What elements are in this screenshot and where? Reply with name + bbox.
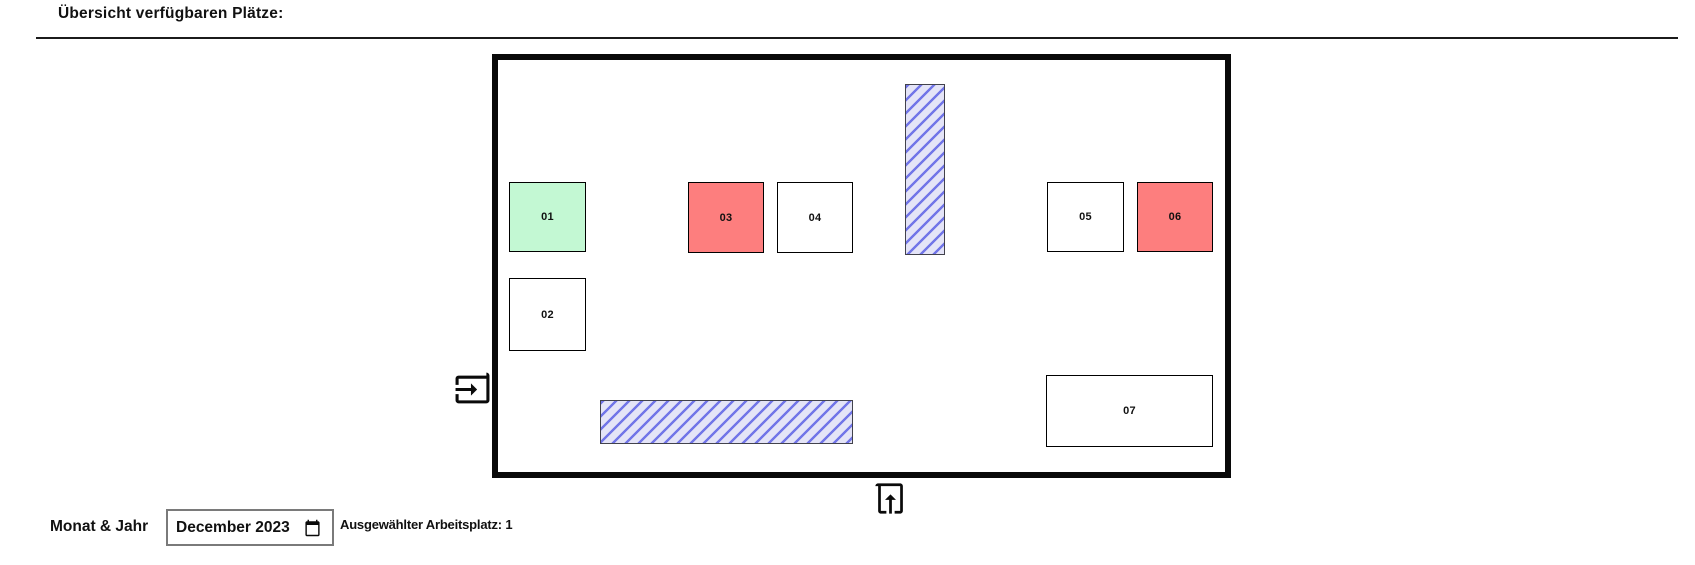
- seat-label: 05: [1079, 211, 1092, 223]
- seat-03[interactable]: 03: [688, 182, 764, 253]
- door-entry-arrow-right-icon: [454, 371, 491, 408]
- calendar-icon[interactable]: [304, 519, 321, 537]
- seat-07[interactable]: 07: [1046, 375, 1213, 447]
- seat-06[interactable]: 06: [1137, 182, 1213, 252]
- month-year-value: December 2023: [176, 519, 290, 537]
- page-title: Übersicht verfügbaren Plätze:: [58, 5, 283, 23]
- seat-04[interactable]: 04: [777, 182, 853, 253]
- seat-label: 07: [1123, 405, 1136, 417]
- seat-label: 04: [809, 212, 822, 224]
- divider: [36, 37, 1678, 39]
- obstacle-hatched-vertical: [905, 84, 945, 255]
- seat-label: 03: [720, 212, 733, 224]
- floorplan-room: 01 02 03 04 05 06 07: [492, 54, 1231, 478]
- seat-label: 06: [1169, 211, 1182, 223]
- door-entry-arrow-up-icon: [874, 482, 907, 515]
- seat-label: 01: [541, 211, 554, 223]
- month-year-input[interactable]: December 2023: [166, 509, 334, 546]
- seat-01[interactable]: 01: [509, 182, 586, 252]
- selected-workspace-text: Ausgewählter Arbeitsplatz: 1: [340, 517, 512, 532]
- month-year-label: Monat & Jahr: [50, 518, 148, 536]
- seat-02[interactable]: 02: [509, 278, 586, 351]
- seat-label: 02: [541, 309, 554, 321]
- obstacle-hatched-horizontal: [600, 400, 853, 444]
- seat-05[interactable]: 05: [1047, 182, 1124, 252]
